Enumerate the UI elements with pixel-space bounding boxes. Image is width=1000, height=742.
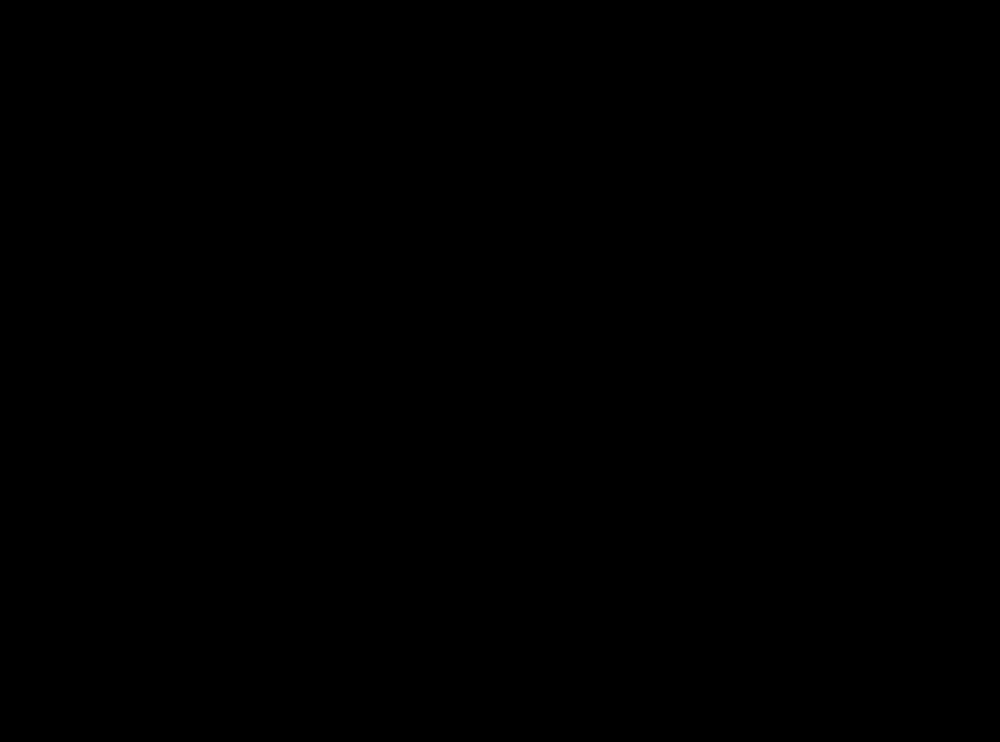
building-background: [0, 0, 1000, 742]
evacuation-floor-plan: [0, 0, 1000, 742]
evacuation-floor-plan-stage: [0, 0, 1000, 742]
